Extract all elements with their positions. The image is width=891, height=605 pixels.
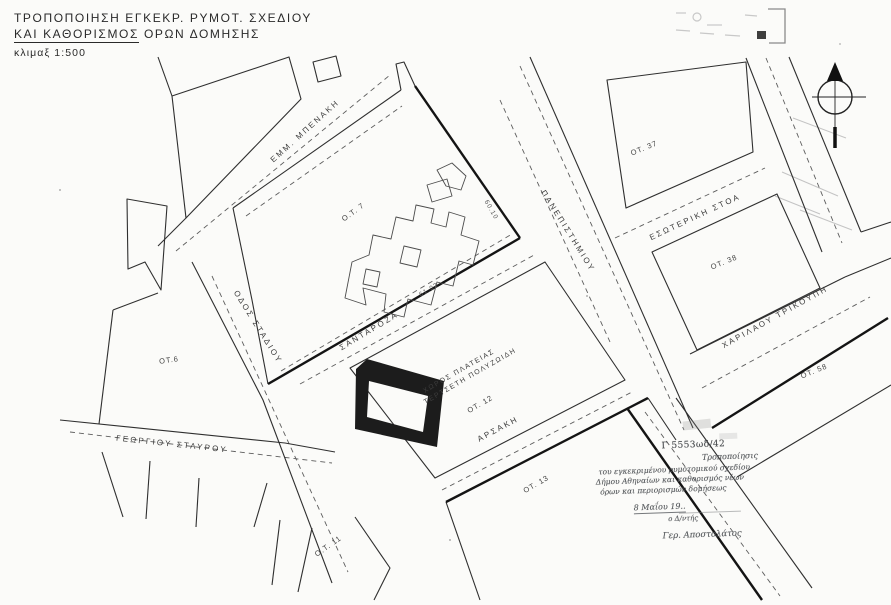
annotation-smudge — [682, 419, 711, 431]
annotation-signature: Γερ. Αποστολάτος — [663, 529, 742, 542]
scale-label: κλιμαξ 1:500 — [14, 45, 312, 61]
title-line-2: ΚΑΙ ΚΑΘΟΡΙΣΜΟΣ ΟΡΩΝ ΔΟΜΗΣΗΣ — [14, 26, 312, 42]
faint-stamp — [676, 9, 785, 43]
annotation-line-1: Τροποποίησις — [702, 451, 758, 462]
title-block: ΤΡΟΠΟΠΟΙΗΣΗ ΕΓΚΕΚΡ. ΡΥΜΟΤ. ΣΧΕΔΙΟΥ ΚΑΙ Κ… — [14, 10, 312, 61]
annotation-role: ο Δ/ντής — [668, 514, 698, 523]
annotation-ref-number: Γ 5553ωδ/42 — [661, 439, 725, 451]
annotation-rule — [679, 511, 741, 514]
title-line-2-underlined: ΚΑΙ ΚΑΘΟΡΙΣΜΟΣ — [14, 27, 139, 43]
handwritten-annotation: Γ 5553ωδ/42 Τροποποίησις του εγκεκριμένο… — [581, 410, 821, 563]
scanned-plan-page: ΤΡΟΠΟΠΟΙΗΣΗ ΕΓΚΕΚΡ. ΡΥΜΟΤ. ΣΧΕΔΙΟΥ ΚΑΙ Κ… — [0, 0, 891, 605]
building-footprints — [345, 163, 479, 317]
title-line-2-rest: ΟΡΩΝ ΔΟΜΗΣΗΣ — [144, 27, 260, 41]
title-line-1: ΤΡΟΠΟΠΟΙΗΣΗ ΕΓΚΕΚΡ. ΡΥΜΟΤ. ΣΧΕΔΙΟΥ — [14, 10, 312, 26]
